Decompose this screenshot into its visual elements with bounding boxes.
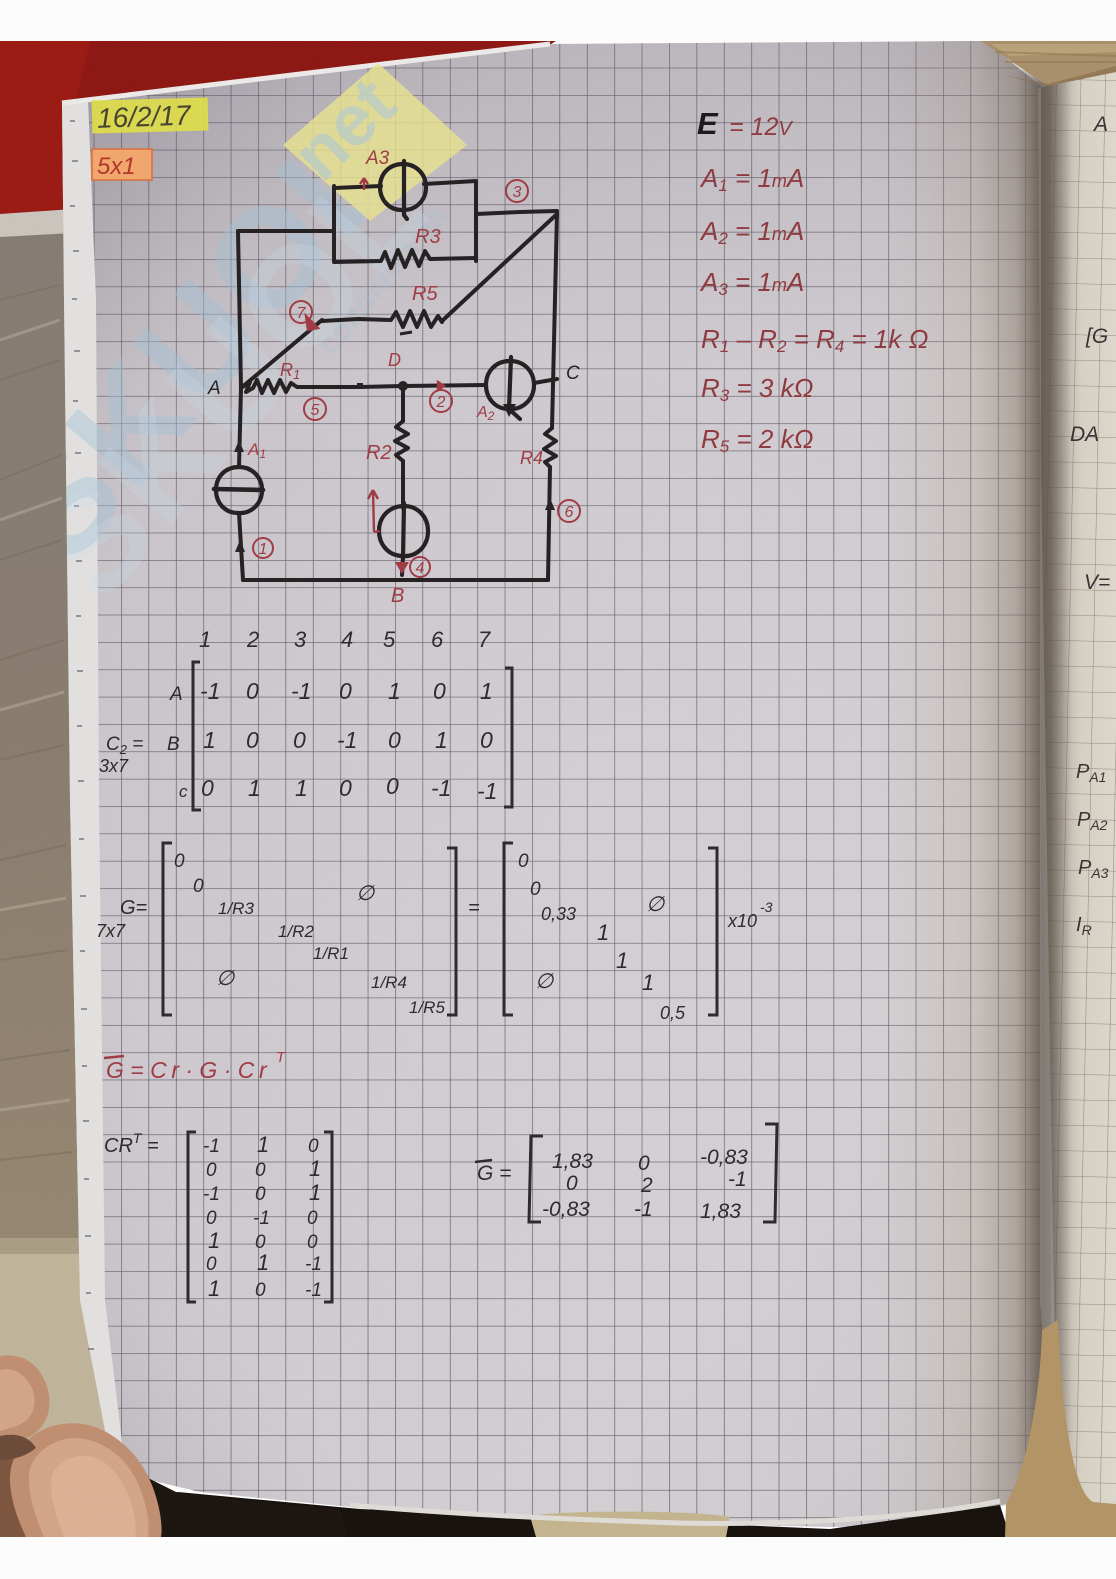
svg-text:1: 1 xyxy=(642,970,654,995)
svg-text:R5: R5 xyxy=(412,283,438,305)
svg-text:x10: x10 xyxy=(727,911,757,931)
svg-text:1/R5: 1/R5 xyxy=(409,998,445,1017)
svg-text:A: A xyxy=(207,378,221,399)
svg-text:1: 1 xyxy=(257,1250,269,1275)
svg-text:1/R4: 1/R4 xyxy=(371,973,407,992)
svg-text:A3 = 1mA: A3 = 1mA xyxy=(699,267,804,299)
svg-text:5x1: 5x1 xyxy=(97,153,136,180)
svg-text:A: A xyxy=(1092,113,1108,136)
svg-text:5: 5 xyxy=(311,402,320,419)
svg-text:0: 0 xyxy=(255,1160,266,1181)
svg-text:R5 = 2 kΩ: R5 = 2 kΩ xyxy=(701,424,813,456)
svg-text:0: 0 xyxy=(307,1208,318,1229)
svg-text:1: 1 xyxy=(480,678,493,704)
svg-text:∅: ∅ xyxy=(535,970,555,993)
svg-text:R4: R4 xyxy=(520,448,543,468)
svg-text:7: 7 xyxy=(478,627,491,652)
svg-text:G = C r · G · C r: G = C r · G · C r xyxy=(106,1057,268,1083)
svg-text:0: 0 xyxy=(307,1232,318,1253)
svg-text:3x7: 3x7 xyxy=(99,756,129,776)
svg-text:0: 0 xyxy=(339,775,352,801)
svg-text:1: 1 xyxy=(259,541,268,558)
svg-text:0: 0 xyxy=(246,727,259,753)
svg-text:= 12V: = 12V xyxy=(729,113,793,141)
svg-text:1: 1 xyxy=(295,775,308,801)
svg-text:G =: G = xyxy=(477,1162,511,1185)
svg-text:0: 0 xyxy=(388,727,401,753)
svg-text:B: B xyxy=(167,734,180,755)
svg-text:0: 0 xyxy=(201,775,214,801)
svg-text:4: 4 xyxy=(341,627,353,652)
svg-text:DA: DA xyxy=(1070,423,1099,446)
svg-text:1/R3: 1/R3 xyxy=(218,899,254,918)
svg-text:0: 0 xyxy=(530,879,541,900)
svg-text:CRT =: CRT = xyxy=(104,1130,159,1157)
svg-text:0: 0 xyxy=(174,851,185,872)
svg-text:0: 0 xyxy=(566,1172,578,1195)
svg-text:0,5: 0,5 xyxy=(660,1003,686,1023)
svg-text:1,83: 1,83 xyxy=(700,1200,741,1223)
svg-text:R1 – R2 = R4 = 1k Ω: R1 – R2 = R4 = 1k Ω xyxy=(701,324,928,356)
svg-text:0: 0 xyxy=(206,1208,217,1229)
svg-text:3: 3 xyxy=(294,627,307,652)
svg-text:1: 1 xyxy=(199,627,211,652)
svg-text:7x7: 7x7 xyxy=(96,921,126,941)
svg-text:-1: -1 xyxy=(477,778,497,804)
svg-text:2: 2 xyxy=(246,627,259,652)
svg-text:0: 0 xyxy=(206,1254,217,1275)
svg-text:[G: [G xyxy=(1085,325,1108,348)
svg-text:∅: ∅ xyxy=(356,882,376,905)
svg-text:-1: -1 xyxy=(203,1136,220,1157)
svg-text:2: 2 xyxy=(436,394,446,411)
svg-text:G=: G= xyxy=(120,897,147,919)
svg-text:0: 0 xyxy=(206,1160,217,1181)
svg-text:1,83: 1,83 xyxy=(552,1150,593,1173)
svg-text:-1: -1 xyxy=(634,1198,653,1221)
svg-text:-3: -3 xyxy=(760,899,773,915)
svg-text:0: 0 xyxy=(193,876,204,897)
svg-text:=: = xyxy=(468,897,480,919)
svg-text:1: 1 xyxy=(616,948,628,973)
svg-text:1: 1 xyxy=(309,1156,321,1181)
svg-text:C: C xyxy=(566,363,580,384)
svg-text:R3: R3 xyxy=(415,226,441,248)
svg-text:1: 1 xyxy=(257,1132,269,1157)
svg-text:1/R2: 1/R2 xyxy=(278,922,314,941)
svg-text:1: 1 xyxy=(309,1180,321,1205)
svg-text:-1: -1 xyxy=(305,1254,322,1275)
svg-text:∅: ∅ xyxy=(216,967,236,990)
svg-text:0: 0 xyxy=(386,773,399,799)
svg-text:1: 1 xyxy=(597,920,609,945)
svg-text:0: 0 xyxy=(339,678,352,704)
svg-text:0: 0 xyxy=(255,1280,266,1301)
svg-text:0: 0 xyxy=(246,678,259,704)
svg-text:-1: -1 xyxy=(431,775,451,801)
svg-text:B: B xyxy=(391,585,404,607)
svg-text:-0,83: -0,83 xyxy=(542,1198,590,1221)
svg-text:-1: -1 xyxy=(200,678,220,704)
svg-text:R2: R2 xyxy=(366,442,392,464)
svg-text:A3: A3 xyxy=(365,148,390,169)
svg-text:D: D xyxy=(388,350,401,370)
svg-text:1: 1 xyxy=(208,1276,220,1301)
svg-text:4: 4 xyxy=(416,560,425,577)
svg-text:V=: V= xyxy=(1084,571,1110,594)
svg-text:16/2/17: 16/2/17 xyxy=(97,100,193,134)
svg-text:1: 1 xyxy=(208,1228,220,1253)
svg-text:-1: -1 xyxy=(253,1208,270,1229)
svg-text:0: 0 xyxy=(293,727,306,753)
svg-text:∅: ∅ xyxy=(646,893,666,916)
svg-text:R3 = 3 kΩ: R3 = 3 kΩ xyxy=(701,373,813,405)
svg-text:-1: -1 xyxy=(337,727,357,753)
svg-text:0: 0 xyxy=(308,1136,319,1157)
svg-text:0: 0 xyxy=(638,1152,650,1175)
svg-text:A2 = 1mA: A2 = 1mA xyxy=(699,216,804,248)
svg-text:6: 6 xyxy=(431,627,444,652)
svg-text:6: 6 xyxy=(565,504,574,521)
svg-text:3: 3 xyxy=(513,184,522,201)
svg-text:0: 0 xyxy=(518,851,529,872)
svg-text:c: c xyxy=(179,782,188,801)
svg-text:2: 2 xyxy=(640,1174,653,1197)
svg-text:0,33: 0,33 xyxy=(541,904,576,924)
svg-text:A: A xyxy=(169,684,183,705)
svg-text:A1 = 1mA: A1 = 1mA xyxy=(699,163,804,195)
svg-text:1: 1 xyxy=(203,727,216,753)
svg-text:-1: -1 xyxy=(291,678,311,704)
svg-text:1/R1: 1/R1 xyxy=(313,944,349,963)
svg-text:-1: -1 xyxy=(203,1184,220,1205)
svg-text:-1: -1 xyxy=(728,1168,747,1191)
svg-text:0: 0 xyxy=(255,1184,266,1205)
svg-text:5: 5 xyxy=(383,627,396,652)
svg-text:-0,83: -0,83 xyxy=(700,1146,748,1169)
svg-text:1: 1 xyxy=(248,775,261,801)
svg-text:0: 0 xyxy=(433,678,446,704)
svg-text:E: E xyxy=(697,106,719,141)
svg-text:0: 0 xyxy=(480,727,493,753)
svg-text:1: 1 xyxy=(388,678,401,704)
svg-text:-1: -1 xyxy=(305,1280,322,1301)
svg-text:1: 1 xyxy=(435,727,448,753)
